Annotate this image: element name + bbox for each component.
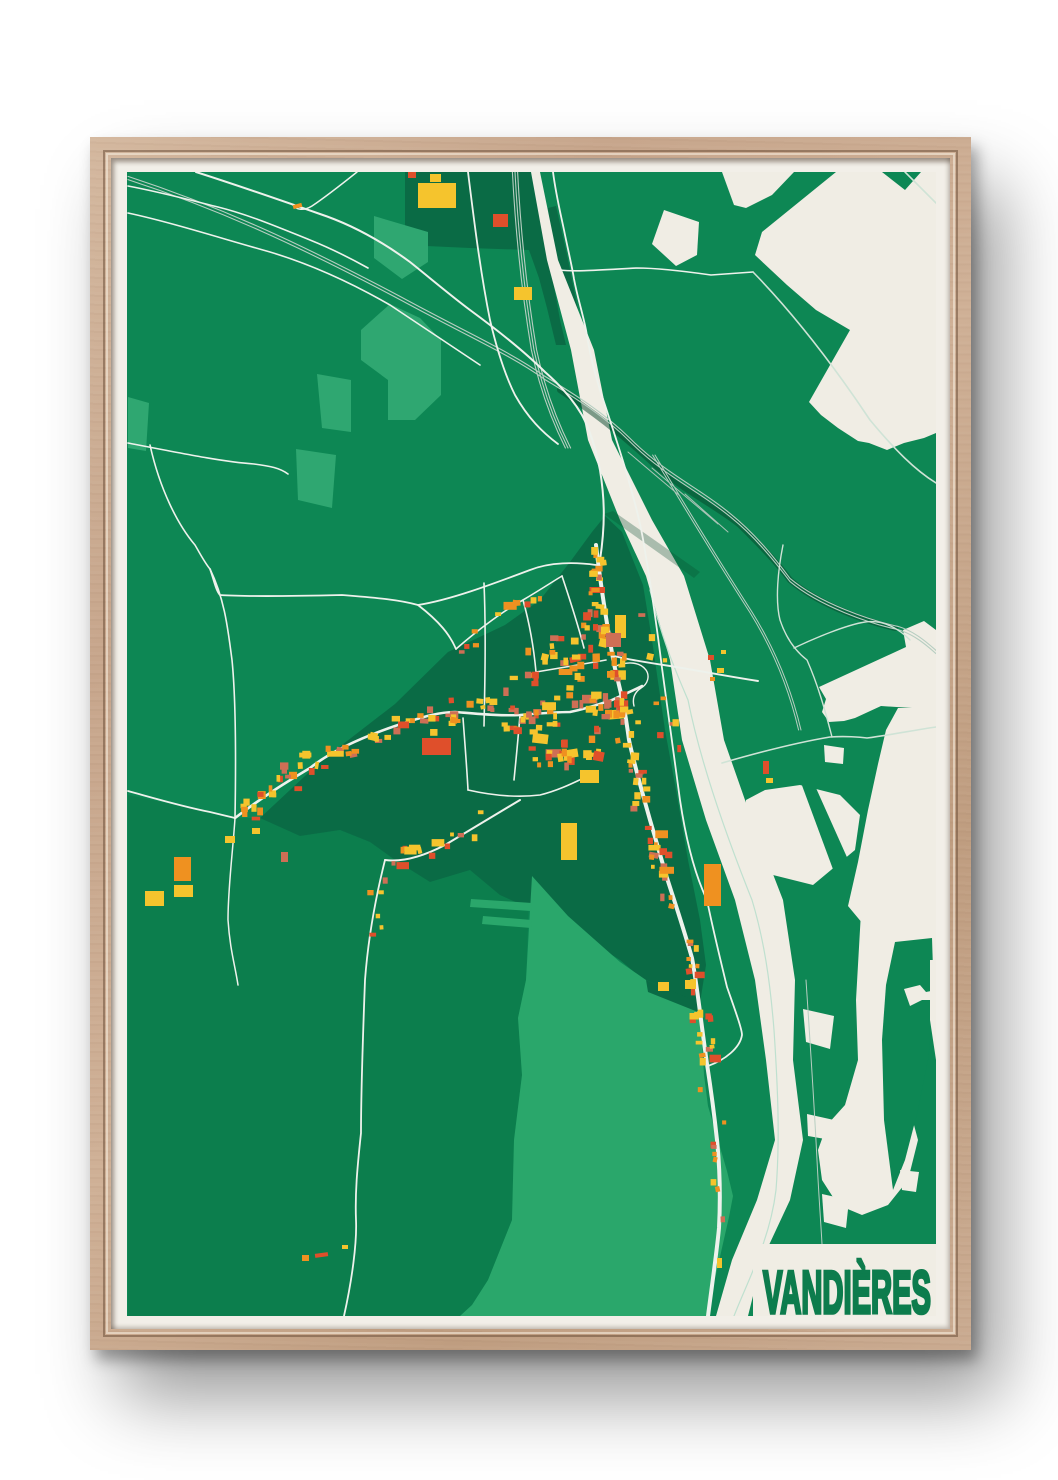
svg-text:VANDIÈRES: VANDIÈRES <box>763 1259 931 1316</box>
